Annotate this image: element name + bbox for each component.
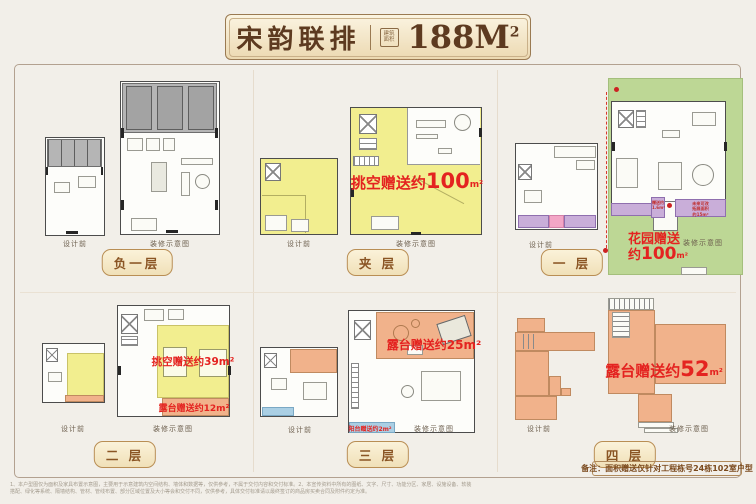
roof-step (561, 388, 571, 396)
project-name: 宋韵联排 (237, 19, 361, 56)
gift-strip (518, 215, 549, 228)
stair-core (265, 163, 281, 181)
furniture (576, 160, 595, 170)
stairs (359, 138, 377, 150)
roof-ridge (523, 334, 535, 349)
caption-before: 设计前 (287, 239, 311, 249)
furniture (146, 138, 160, 151)
furniture (524, 190, 542, 203)
hollow-area (67, 353, 104, 396)
furniture (692, 112, 716, 126)
pointer-dot-icon (667, 203, 672, 208)
house-outline (611, 101, 726, 204)
stairs (353, 156, 379, 166)
wall-segment (118, 366, 121, 375)
title-box: 宋韵联排 建筑 面积 188M2 (225, 14, 531, 60)
parking-area (47, 139, 102, 167)
caption-after: 装修示意图 (396, 239, 436, 249)
plant-icon (411, 319, 420, 328)
wall-segment (121, 200, 124, 210)
annotation-terrace-gift: 露台赠送约12m² (159, 401, 230, 414)
roof-ridge (608, 298, 654, 310)
furniture (78, 176, 96, 188)
floor-badge-basement: 负一层 (102, 249, 173, 276)
furniture (438, 148, 452, 154)
wall-segment (166, 230, 178, 233)
parking-stall (126, 86, 152, 130)
stair-core (359, 114, 377, 134)
plan-after (120, 81, 220, 235)
bed (616, 158, 638, 188)
storage-room (291, 219, 309, 232)
wall-segment (121, 128, 124, 138)
gift-strip (611, 203, 653, 216)
balcony (131, 218, 157, 231)
building-area-value: 188M2 (408, 21, 520, 53)
furniture (662, 130, 680, 138)
kitchen-counter (554, 146, 596, 158)
terrace-area (638, 394, 672, 422)
roof-step (549, 376, 561, 396)
annotation-balcony-gift: 阳台赠送约2m² (348, 424, 391, 433)
stairs (636, 110, 646, 128)
boundary-dot-icon (603, 248, 608, 253)
wall-line (262, 195, 306, 196)
gift-strip (564, 215, 596, 228)
furniture (303, 382, 327, 400)
chair (401, 385, 414, 398)
wall-segment (724, 142, 727, 151)
annotation-terrace-gift: 露台赠送约52m² (605, 357, 723, 381)
skylight (371, 216, 399, 230)
stair-core (121, 314, 138, 334)
floor-badge-mezzanine: 夹 层 (347, 249, 409, 276)
bathroom (168, 309, 184, 320)
roof-section (515, 351, 549, 396)
caption-before: 设计前 (61, 424, 85, 434)
stairs (121, 336, 138, 346)
stairs (612, 312, 630, 338)
wall-segment (479, 128, 482, 137)
billiard-table (151, 162, 167, 192)
bed (421, 371, 461, 401)
plan-before (42, 343, 105, 403)
stair-core (354, 320, 371, 340)
furniture (271, 378, 287, 390)
stair-core (264, 353, 277, 368)
furniture (48, 372, 62, 382)
roof-section (517, 318, 545, 332)
remark-box: 备注：面积赠送仅针对工程栋号24栋102室户型 (592, 461, 742, 476)
plan-before (260, 347, 338, 417)
bathroom (144, 309, 164, 321)
plan-after (348, 310, 475, 433)
annotation-expand: 未来可改 拓展面积 约15m² (675, 199, 726, 217)
wall-segment (66, 231, 78, 234)
floorplan-poster: 宋韵联排 建筑 面积 188M2 (0, 0, 756, 504)
floor-badge-first: 一 层 (541, 249, 603, 276)
sofa (181, 158, 213, 165)
wall-segment (612, 142, 615, 151)
plan-before (45, 137, 105, 236)
column-divider (497, 70, 498, 472)
wall-segment (215, 200, 218, 210)
gift-strip-pink (549, 215, 564, 228)
annotation-garden-gift: 花园赠送 约100m² (628, 232, 688, 263)
parking-stall (188, 86, 214, 130)
balcony-strip (262, 407, 294, 416)
wall-segment (411, 232, 421, 235)
stair-core (46, 348, 58, 362)
caption-after: 装修示意图 (669, 424, 709, 434)
caption-before: 设计前 (527, 424, 551, 434)
storage-room (265, 215, 287, 231)
furniture (163, 138, 175, 151)
annotation-terrace-gift: 露台赠送约25m² (387, 336, 481, 353)
disclaimer-text: 1、本户型图仅为面积及家具布置示意图，主要用于示意建筑内空间结构、墙体和数据等，… (10, 482, 750, 496)
floor-badge-third: 三 层 (347, 441, 409, 468)
furniture (54, 182, 70, 193)
caption-before: 设计前 (288, 425, 312, 435)
floor-badge-second: 二 层 (94, 441, 156, 468)
wall-segment (101, 167, 103, 175)
dining-table (692, 164, 714, 186)
boundary-dot-icon (614, 87, 619, 92)
parking-stall (157, 86, 183, 130)
row-divider (20, 292, 736, 293)
office-area (407, 108, 480, 165)
caption-before: 设计前 (63, 239, 87, 249)
boundary-dashed-line (606, 92, 607, 248)
stair-core (618, 110, 634, 128)
column-divider (253, 70, 254, 472)
terrace-strip (65, 395, 104, 402)
wall-segment (46, 167, 48, 175)
desk (416, 134, 438, 139)
plan-before (515, 143, 598, 230)
sofa (658, 162, 682, 190)
title-divider (370, 25, 371, 50)
garden-gate (681, 267, 707, 275)
annotation-small-gift: 赠送约 1.6m² (651, 197, 665, 218)
roof-section (515, 396, 557, 420)
plan-before (260, 158, 338, 235)
desk (416, 120, 446, 128)
building-area-seal-icon: 建筑 面积 (380, 28, 399, 47)
furniture (127, 138, 143, 151)
caption-after: 装修示意图 (153, 424, 193, 434)
caption-after: 装修示意图 (414, 424, 454, 434)
sofa (181, 172, 190, 196)
round-table (195, 174, 210, 189)
round-table (454, 114, 471, 131)
annotation-hollow-gift: 挑空赠送约100m² (351, 169, 483, 193)
caption-after: 装修示意图 (150, 239, 190, 249)
terrace-area (290, 349, 337, 373)
annotation-hollow-gift: 挑空赠送约39m² (152, 354, 235, 369)
stair-core (518, 164, 532, 180)
caption-after: 装修示意图 (683, 238, 723, 248)
stairs (351, 363, 359, 409)
wall-segment (215, 128, 218, 138)
